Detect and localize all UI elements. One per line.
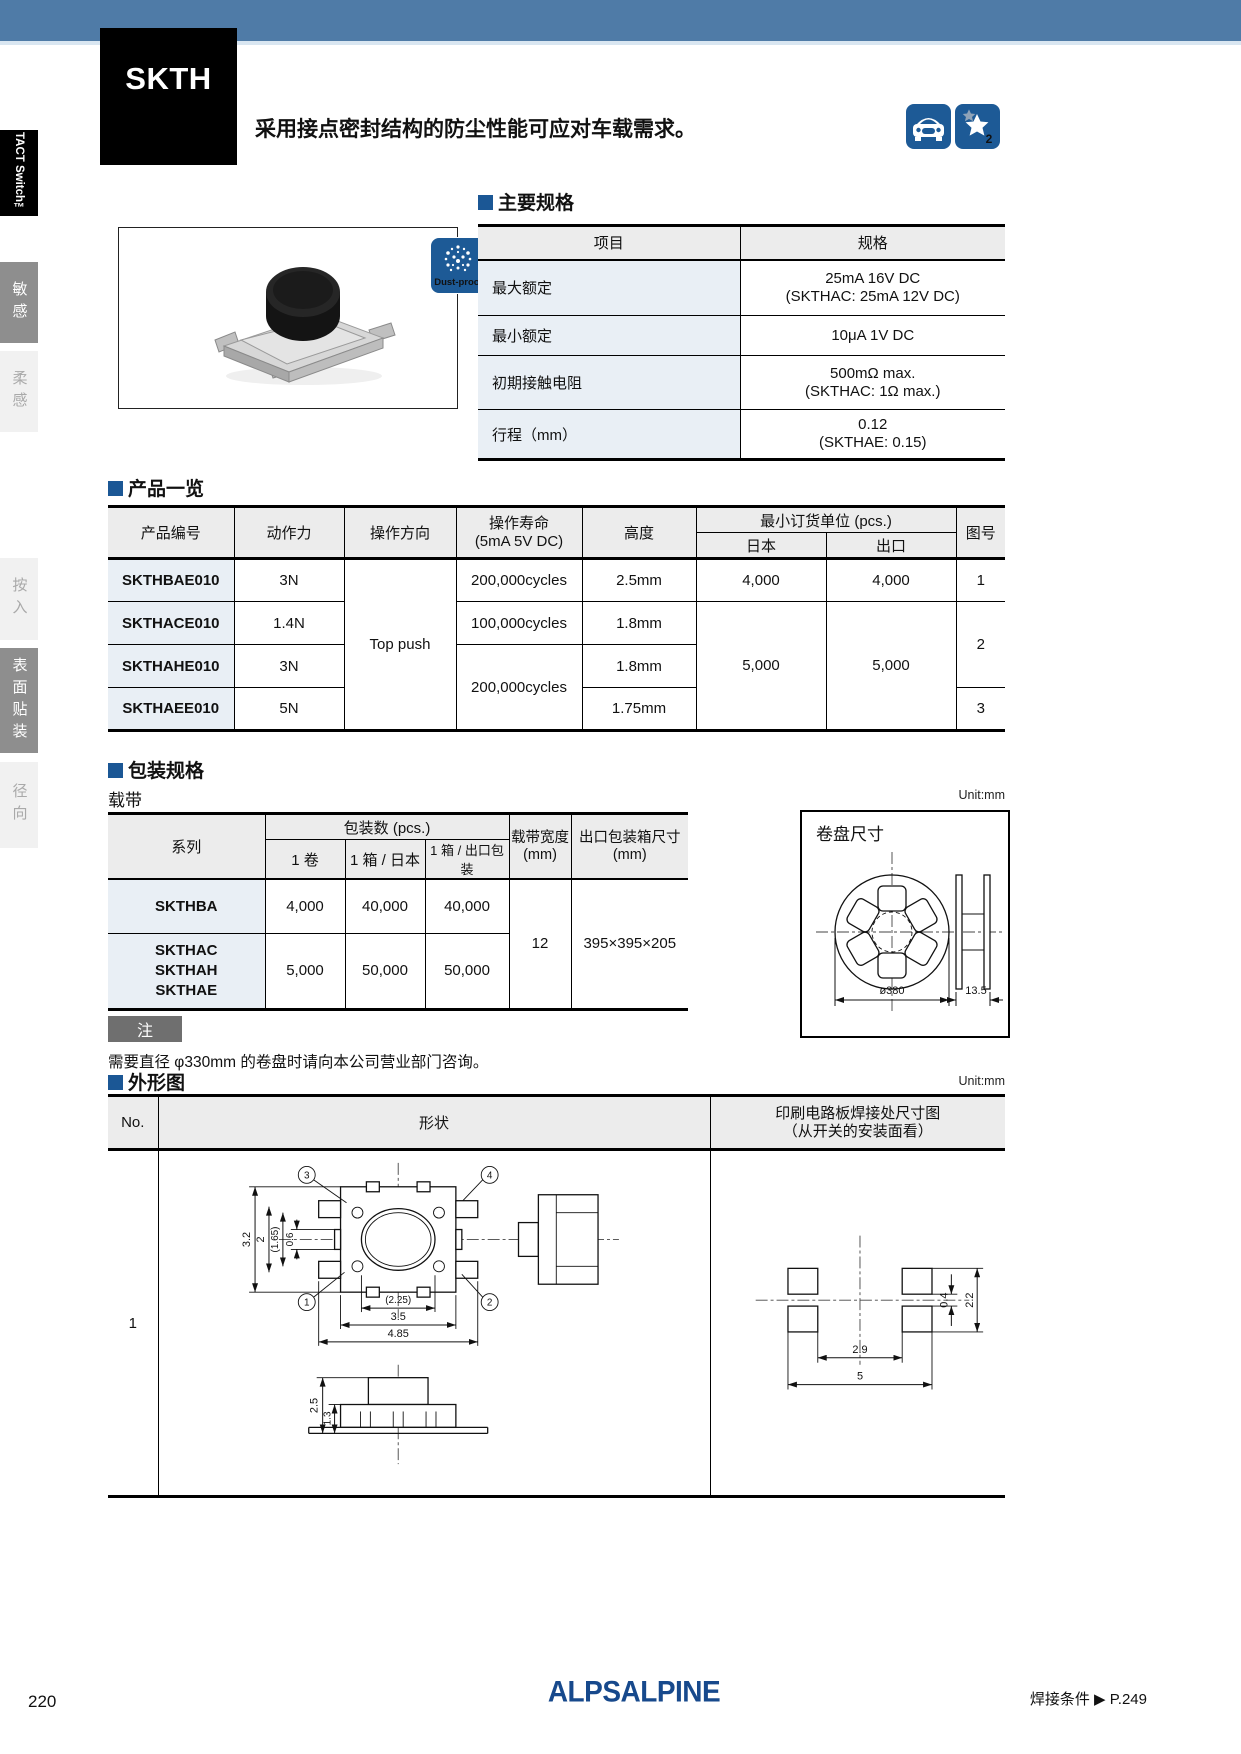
col-pcb: 印刷电路板焊接处尺寸图 （从开关的安装面看）	[710, 1096, 1005, 1150]
packaging-table: 系列 包装数 (pcs.) 载带宽度 (mm) 出口包装箱尺寸 (mm) 1 卷…	[108, 812, 688, 1011]
col-shape: 形状	[158, 1096, 710, 1150]
sidebar-item-sensitive: 敏感	[0, 262, 38, 343]
svg-text:4: 4	[487, 1170, 493, 1181]
car-icon	[906, 104, 951, 149]
soldering-conditions-link[interactable]: 焊接条件 ▶ P.249	[1030, 1688, 1147, 1709]
outline-table: No. 形状 印刷电路板焊接处尺寸图 （从开关的安装面看） 1	[108, 1094, 1005, 1498]
figure-no: 1	[108, 1150, 158, 1497]
table-row: 行程（mm） 0.12(SKTHAE: 0.15)	[478, 410, 1005, 460]
page-title: 3.5×3.2mm小型防尘型（表面贴装）	[255, 61, 675, 98]
sidebar-item-radial: 径向	[0, 762, 38, 848]
specs-col-spec: 规格	[740, 226, 1005, 260]
unit-label: Unit:mm	[895, 1074, 1005, 1088]
col-qty: 包装数 (pcs.)	[265, 814, 509, 840]
table-row: 最小额定 10μA 1V DC	[478, 316, 1005, 356]
direction-cell: Top push	[344, 559, 456, 731]
svg-text:(2.25): (2.25)	[385, 1295, 411, 1306]
svg-text:4.85: 4.85	[388, 1328, 409, 1340]
col-box-japan: 1 箱 / 日本	[345, 840, 425, 880]
col-japan: 日本	[696, 533, 826, 559]
outline-heading: 外形图	[108, 1068, 185, 1095]
tact-switch-photo	[119, 228, 454, 405]
specs-table: 项目 规格 最大额定 25mA 16V DC(SKTHAC: 25mA 12V …	[478, 224, 1005, 461]
page-subtitle: 采用接点密封结构的防尘性能可应对车载需求。	[255, 113, 696, 143]
svg-text:ø380: ø380	[879, 985, 904, 997]
col-series: 系列	[108, 814, 265, 880]
col-export: 出口	[826, 533, 956, 559]
table-row: 1	[108, 1150, 1005, 1497]
unit-label: Unit:mm	[895, 788, 1005, 802]
pcb-pad-drawing: 0.4 2.2 2.9 5	[711, 1151, 1004, 1491]
svg-text:13.5: 13.5	[965, 985, 986, 997]
svg-text:2.9: 2.9	[853, 1344, 868, 1356]
svg-text:2.5: 2.5	[309, 1398, 321, 1413]
col-no: No.	[108, 1096, 158, 1150]
col-box-export: 1 箱 / 出口包装	[425, 840, 509, 880]
table-row: SKTHACE010 1.4N 100,000cycles 1.8mm 5,00…	[108, 602, 1005, 645]
reel-dimensions-panel: 卷盘尺寸 ø380	[800, 810, 1010, 1038]
products-heading: 产品一览	[108, 474, 204, 501]
section-square-icon	[478, 195, 493, 210]
dust-proof-label: Dust-proof	[434, 277, 483, 288]
note-tag: 注	[108, 1016, 182, 1042]
col-fig: 图号	[956, 507, 1005, 559]
sidebar-category-tab: TACT Switch™	[0, 130, 38, 216]
svg-text:1: 1	[304, 1298, 310, 1309]
reel-drawing: ø380 13.5	[804, 842, 1006, 1034]
col-life: 操作寿命 (5mA 5V DC)	[456, 507, 582, 559]
svg-text:1.3: 1.3	[323, 1411, 334, 1425]
svg-text:3.5: 3.5	[391, 1311, 406, 1323]
star-2-icon: 2	[955, 104, 1000, 149]
col-tape-width: 载带宽度 (mm)	[509, 814, 571, 880]
table-row: SKTHBA 4,000 40,000 40,000 12 395×395×20…	[108, 879, 688, 933]
table-row: 初期接触电阻 500mΩ max.(SKTHAC: 1Ω max.)	[478, 356, 1005, 410]
col-carton: 出口包装箱尺寸 (mm)	[571, 814, 688, 880]
page-number: 220	[28, 1692, 56, 1712]
tape-width-value: 12	[509, 879, 571, 1009]
section-square-icon	[108, 1075, 123, 1090]
table-row: SKTHBAE010 3N Top push 200,000cycles 2.5…	[108, 559, 1005, 602]
sidebar-item-smd: 表面贴装	[0, 648, 38, 753]
svg-text:0.4: 0.4	[939, 1293, 951, 1308]
series-name: SKTH	[100, 61, 237, 97]
col-direction: 操作方向	[344, 507, 456, 559]
catalog-page: SKTH 3.5×3.2mm小型防尘型（表面贴装） 采用接点密封结构的防尘性能可…	[0, 0, 1241, 1754]
col-part: 产品编号	[108, 507, 234, 559]
products-table: 产品编号 动作力 操作方向 操作寿命 (5mA 5V DC) 高度 最小订货单位…	[108, 505, 1005, 732]
carrier-tape-label: 载带	[108, 786, 142, 811]
product-photo	[118, 227, 458, 409]
svg-text:0.6: 0.6	[285, 1232, 296, 1246]
carton-size-value: 395×395×205	[571, 879, 688, 1009]
sidebar-item-soft: 柔感	[0, 351, 38, 432]
col-moq: 最小订货单位 (pcs.)	[696, 507, 956, 533]
section-square-icon	[108, 763, 123, 778]
section-square-icon	[108, 481, 123, 496]
table-row: 最大额定 25mA 16V DC(SKTHAC: 25mA 12V DC)	[478, 260, 1005, 316]
specs-heading: 主要规格	[478, 188, 574, 215]
packaging-heading: 包装规格	[108, 756, 204, 783]
sidebar-item-push: 按入	[0, 558, 38, 640]
svg-text:5: 5	[857, 1371, 863, 1383]
alps-alpine-logo: ALPSALPINE	[484, 1675, 784, 1709]
svg-text:2: 2	[487, 1298, 493, 1309]
svg-text:2.2: 2.2	[964, 1293, 976, 1308]
col-force: 动作力	[234, 507, 344, 559]
svg-text:(1.65): (1.65)	[270, 1226, 281, 1252]
col-reel: 1 卷	[265, 840, 345, 880]
star-number: 2	[986, 132, 993, 146]
specs-col-item: 项目	[478, 226, 740, 260]
svg-text:3: 3	[304, 1170, 310, 1181]
series-box: SKTH	[100, 28, 237, 165]
shape-drawing: 3.2 2 (1.65) 0.6 (2.25)	[159, 1151, 709, 1491]
col-height: 高度	[582, 507, 696, 559]
svg-text:2: 2	[255, 1236, 267, 1242]
sidebar-category-label: TACT Switch™	[13, 132, 25, 214]
svg-text:3.2: 3.2	[241, 1232, 253, 1247]
